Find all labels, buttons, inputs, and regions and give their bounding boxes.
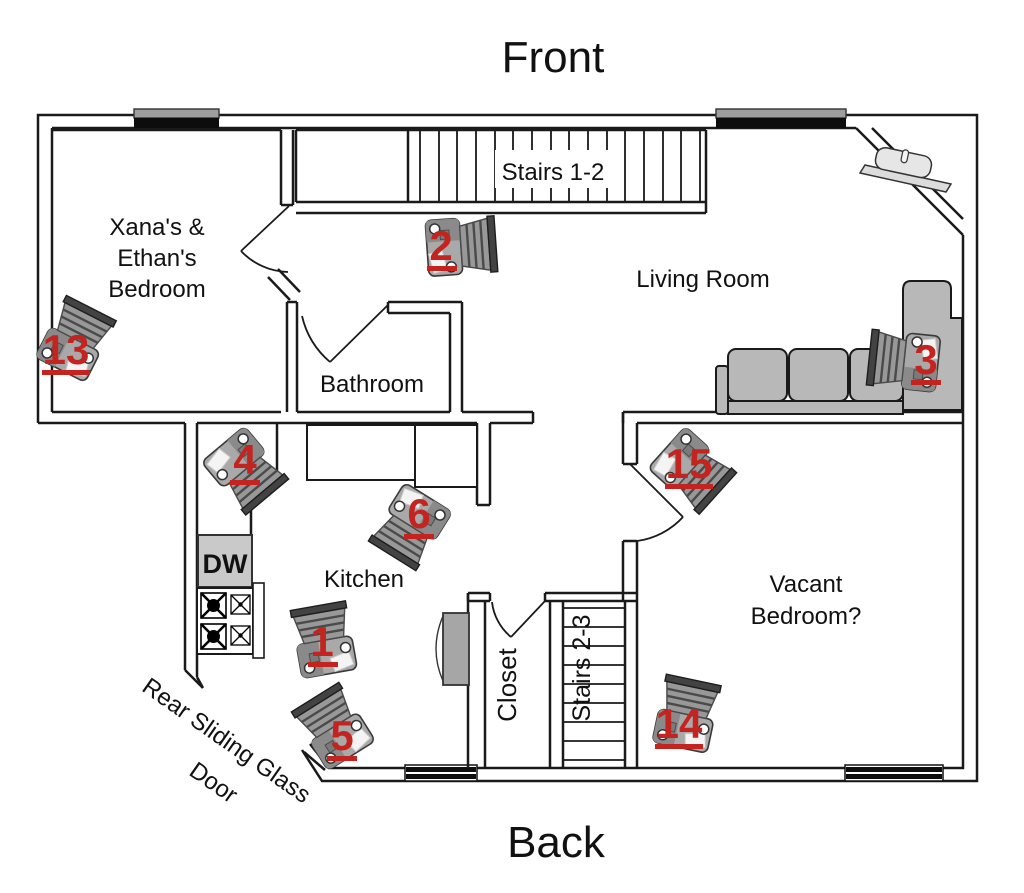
window-bar-icon bbox=[134, 109, 219, 128]
bathroom-door-arc bbox=[302, 316, 330, 362]
camera-number-15: 15 bbox=[666, 440, 713, 487]
camera-number-13: 13 bbox=[43, 326, 90, 373]
room-label-living-room: Living Room bbox=[636, 266, 769, 293]
camera-number-underline bbox=[911, 380, 941, 385]
couch-cushion bbox=[789, 349, 848, 401]
room-label-bedroom-line3: Bedroom bbox=[108, 276, 205, 303]
couch-armrest bbox=[716, 366, 728, 414]
closet-door-leaf bbox=[511, 601, 545, 637]
dishwasher: DW bbox=[198, 535, 252, 587]
camera-number-underline bbox=[308, 662, 338, 667]
couch-cushion bbox=[728, 349, 787, 401]
dishwasher-label: DW bbox=[203, 549, 248, 579]
camera-number-14: 14 bbox=[656, 700, 703, 747]
stairs-1-2-label: Stairs 1-2 bbox=[502, 159, 605, 186]
camera-number-1: 1 bbox=[310, 618, 333, 665]
front-door-icon bbox=[716, 109, 846, 128]
room-label-closet: Closet bbox=[492, 647, 522, 721]
stove-burners-icon bbox=[197, 583, 264, 658]
camera-number-underline bbox=[655, 744, 703, 749]
room-label-kitchen: Kitchen bbox=[324, 566, 404, 593]
window-bar-icon bbox=[845, 765, 943, 781]
bedroom-door-leaf bbox=[241, 206, 289, 251]
back-door bbox=[436, 613, 469, 685]
room-label-bathroom: Bathroom bbox=[320, 371, 424, 398]
bedroom-door-arc bbox=[241, 251, 288, 272]
bathroom-door-leaf bbox=[330, 305, 388, 362]
floor-plan-drawing: DW bbox=[0, 0, 1024, 893]
room-label-vacant-line1: Vacant bbox=[770, 571, 843, 598]
front-label: Front bbox=[502, 33, 605, 82]
couch-backrest bbox=[728, 401, 903, 414]
camera-number-underline bbox=[42, 370, 90, 375]
camera-number-underline bbox=[230, 480, 260, 485]
camera-number-underline bbox=[427, 266, 457, 271]
corner-fireplace-icon bbox=[860, 144, 951, 192]
camera-number-2: 2 bbox=[429, 222, 452, 269]
rear-door-label-line2: Door bbox=[184, 757, 242, 809]
room-label-bedroom-line2: Ethan's bbox=[117, 245, 196, 272]
closet-door-arc bbox=[492, 602, 511, 637]
camera-number-3: 3 bbox=[914, 336, 937, 383]
camera-number-underline bbox=[327, 756, 357, 761]
floor-plan: DW bbox=[0, 0, 1024, 893]
room-label-bedroom-line1: Xana's & bbox=[109, 214, 204, 241]
vacant-door-arc bbox=[637, 517, 683, 541]
camera-number-5: 5 bbox=[330, 712, 353, 759]
camera-number-4: 4 bbox=[233, 436, 257, 483]
camera-number-underline bbox=[404, 534, 434, 539]
window-bar-icon bbox=[405, 765, 477, 781]
camera-number-6: 6 bbox=[407, 490, 430, 537]
camera-number-underline bbox=[665, 484, 713, 489]
back-door-arc bbox=[436, 616, 443, 681]
stairs-2-3-label: Stairs 2-3 bbox=[568, 615, 596, 722]
back-label: Back bbox=[507, 818, 606, 867]
room-label-vacant-line2: Bedroom? bbox=[751, 603, 862, 630]
